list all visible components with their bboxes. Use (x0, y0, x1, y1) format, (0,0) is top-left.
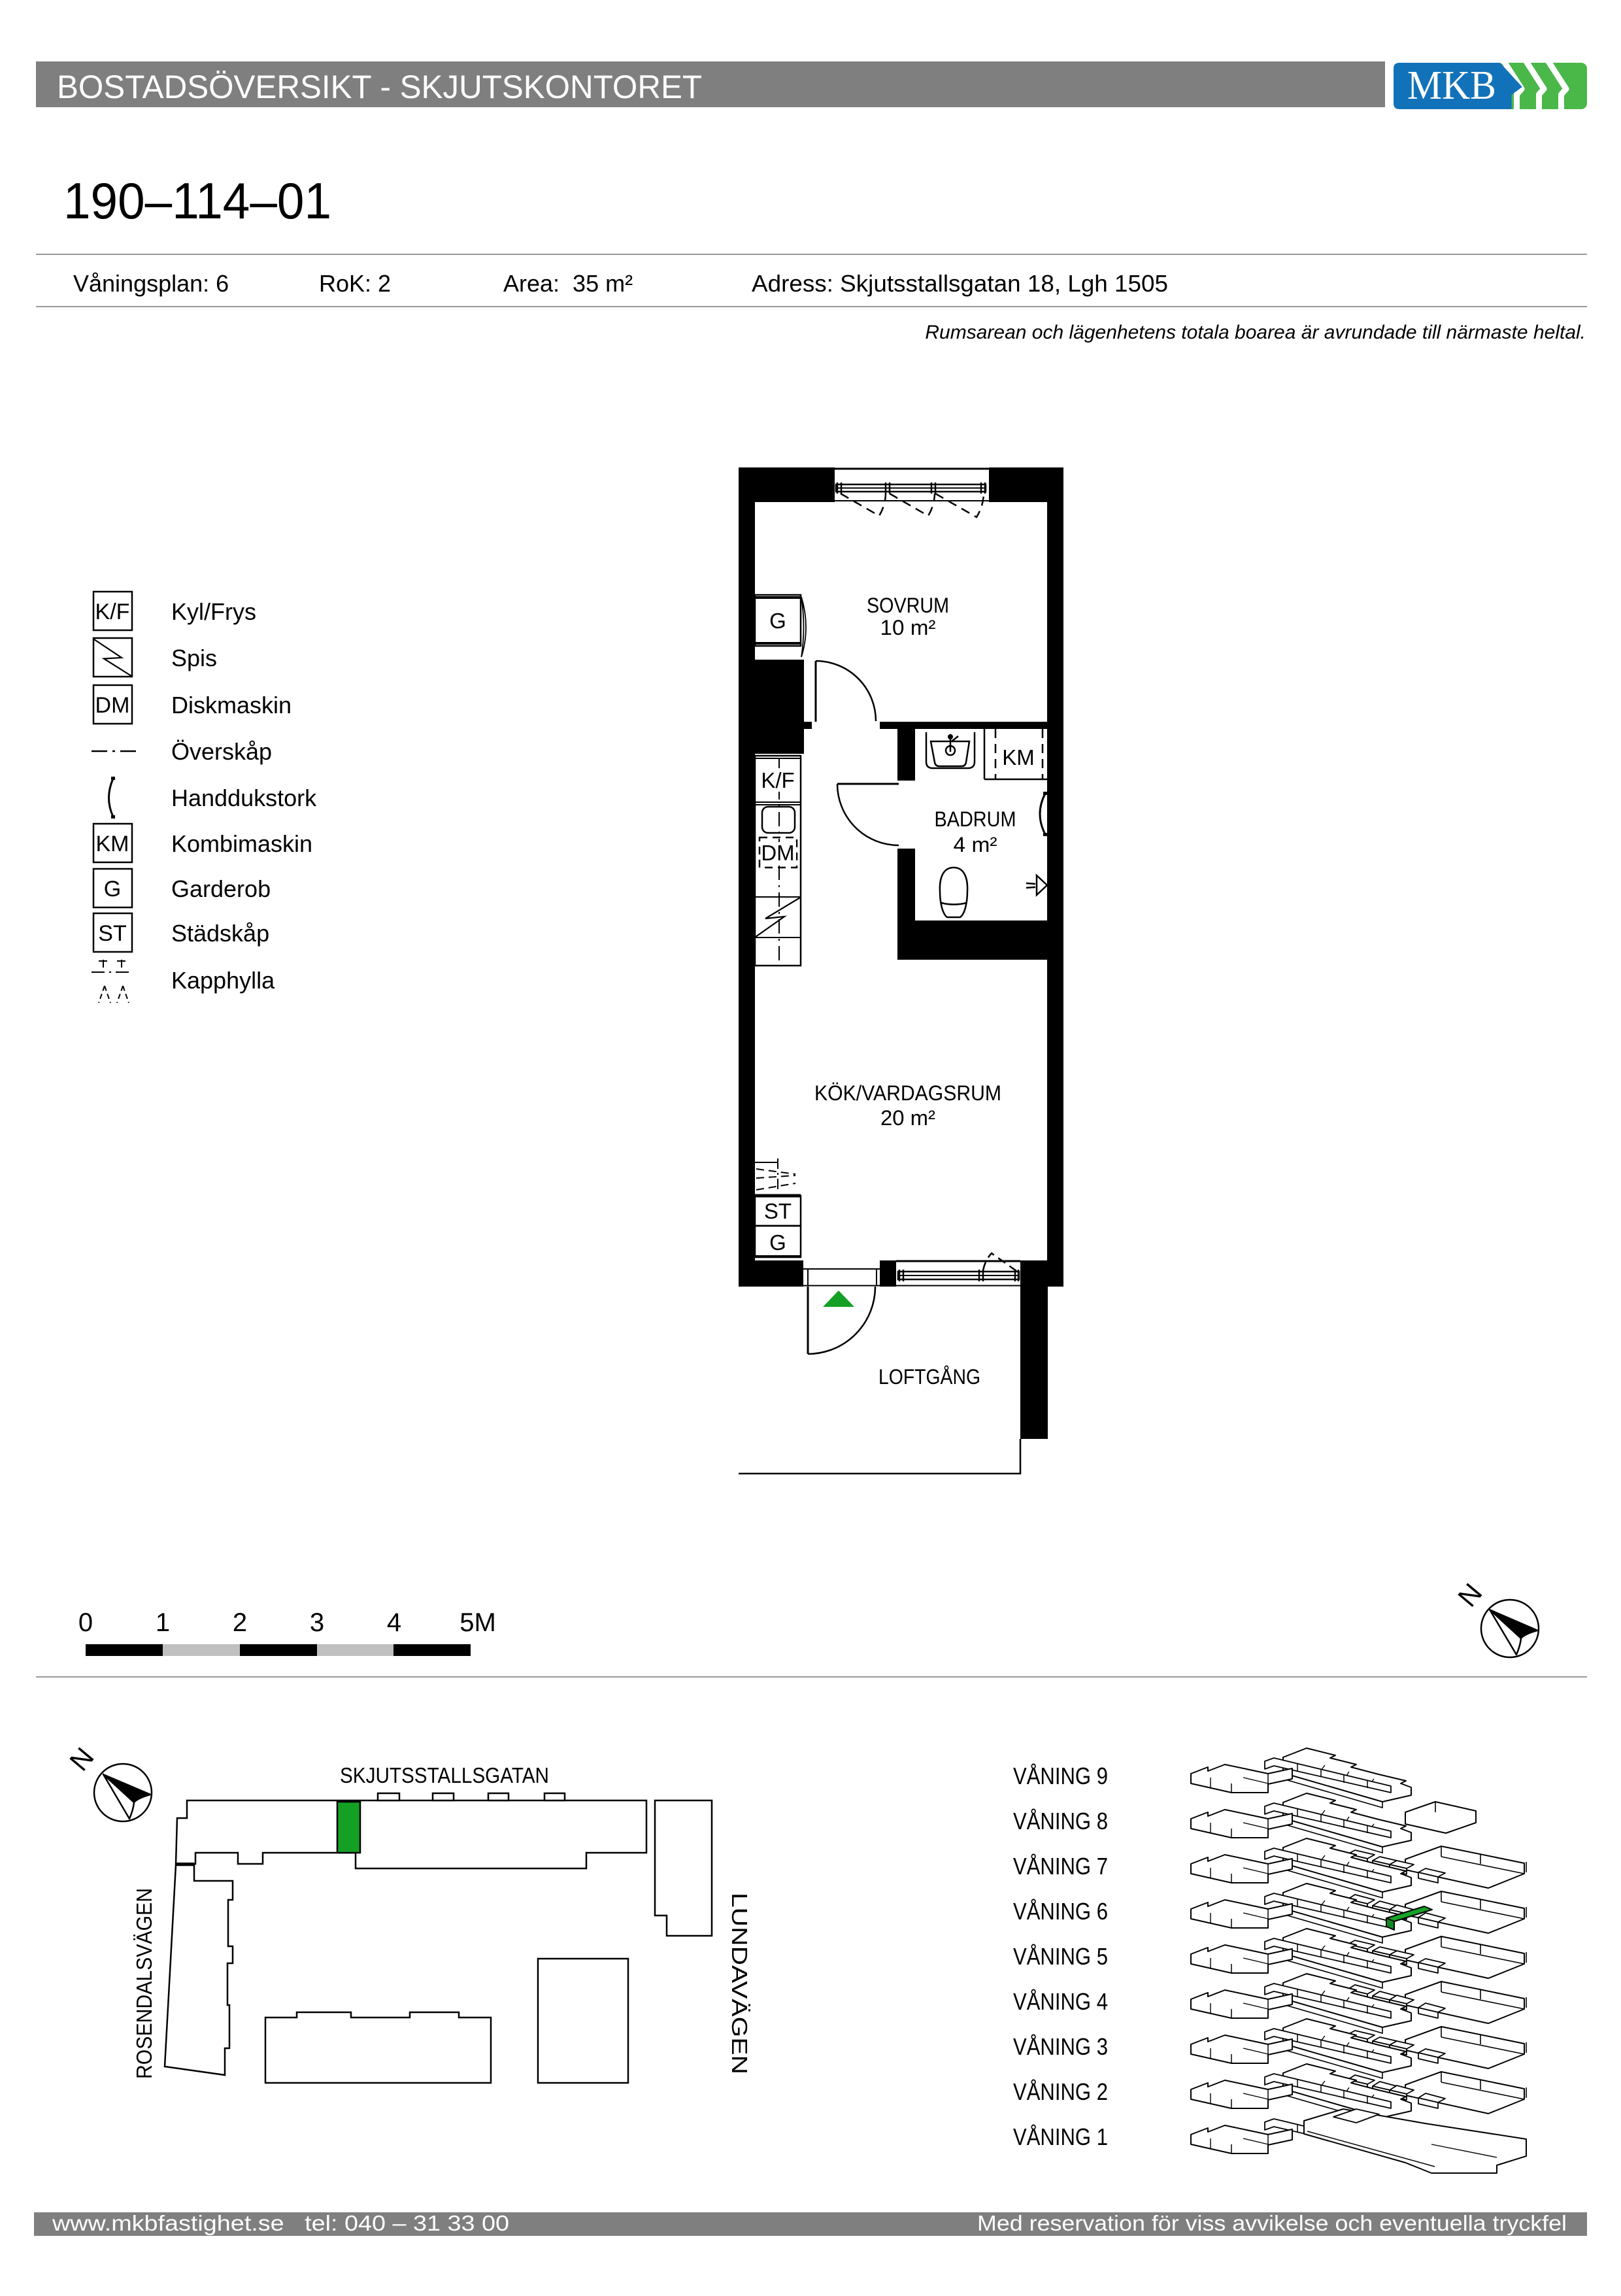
svg-text:www.mkbfastighet.se tel: 040: www.mkbfastighet.se tel: 040 – 31 33 00 (52, 2211, 509, 2235)
svg-text:SKJUTSSTALLSGATAN: SKJUTSSTALLSGATAN (340, 1763, 549, 1787)
svg-text:K/F: K/F (761, 768, 794, 792)
svg-text:1: 1 (156, 1608, 170, 1637)
svg-text:VÅNING 8: VÅNING 8 (1013, 1808, 1108, 1834)
svg-text:Med reservation för viss avvik: Med reservation för viss avvikelse och e… (977, 2211, 1567, 2235)
svg-text:LOFTGÅNG: LOFTGÅNG (878, 1365, 980, 1389)
svg-text:5M: 5M (460, 1608, 496, 1637)
svg-text:Städskåp: Städskåp (171, 920, 269, 947)
svg-text:VÅNING 3: VÅNING 3 (1013, 2033, 1108, 2060)
svg-text:KM: KM (96, 832, 129, 856)
svg-text:VÅNING 2: VÅNING 2 (1013, 2078, 1108, 2105)
svg-text:Handdukstork: Handdukstork (171, 785, 317, 811)
svg-text:Kapphylla: Kapphylla (171, 967, 275, 994)
svg-text:VÅNING 5: VÅNING 5 (1013, 1943, 1108, 1970)
svg-text:Kombimaskin: Kombimaskin (171, 830, 312, 857)
svg-text:Diskmaskin: Diskmaskin (171, 692, 292, 718)
svg-text:MKB: MKB (1407, 63, 1496, 108)
svg-text:SOVRUM: SOVRUM (867, 594, 949, 617)
svg-text:LUNDAVÄGEN: LUNDAVÄGEN (727, 1893, 752, 2074)
svg-text:3: 3 (310, 1608, 324, 1637)
svg-text:VÅNING 1: VÅNING 1 (1013, 2123, 1108, 2150)
svg-text:G: G (769, 1230, 786, 1255)
svg-text:RoK: 2: RoK: 2 (319, 270, 391, 297)
svg-text:G: G (104, 877, 121, 902)
svg-text:ST: ST (764, 1199, 792, 1223)
svg-text:Kyl/Frys: Kyl/Frys (171, 598, 256, 625)
svg-text:K/F: K/F (95, 599, 130, 624)
svg-text:ST: ST (98, 921, 126, 946)
svg-text:KM: KM (1002, 745, 1035, 769)
svg-text:Area: 35 m²: Area: 35 m² (503, 270, 633, 297)
svg-text:0: 0 (78, 1608, 93, 1637)
svg-text:4 m²: 4 m² (954, 833, 997, 856)
svg-text:190–114–01: 190–114–01 (63, 172, 331, 229)
svg-text:KÖK/VARDAGSRUM: KÖK/VARDAGSRUM (814, 1081, 1001, 1105)
svg-text:DM: DM (761, 841, 794, 865)
svg-text:10 m²: 10 m² (880, 616, 936, 639)
svg-text:N: N (63, 1742, 100, 1776)
svg-text:4: 4 (387, 1608, 401, 1637)
svg-text:Rumsarean och lägenhetens tota: Rumsarean och lägenhetens totala boarea … (925, 322, 1586, 343)
svg-text:Garderob: Garderob (171, 875, 271, 902)
svg-text:Överskåp: Överskåp (171, 738, 272, 765)
svg-text:N: N (1452, 1578, 1488, 1612)
svg-text:ROSENDALSVÄGEN: ROSENDALSVÄGEN (132, 1888, 156, 2079)
svg-text:VÅNING 6: VÅNING 6 (1013, 1898, 1108, 1925)
svg-text:Adress: Skjutsstallsgatan 18,: Adress: Skjutsstallsgatan 18, Lgh 1505 (752, 270, 1168, 297)
svg-text:VÅNING 4: VÅNING 4 (1013, 1988, 1108, 2015)
svg-text:Våningsplan: 6: Våningsplan: 6 (73, 270, 229, 297)
svg-text:VÅNING 7: VÅNING 7 (1013, 1853, 1108, 1880)
svg-text:2: 2 (233, 1608, 247, 1637)
svg-text:BOSTADSÖVERSIKT - SKJUTSKONTOR: BOSTADSÖVERSIKT - SKJUTSKONTORET (57, 69, 702, 105)
svg-text:DM: DM (95, 693, 130, 718)
svg-text:20 m²: 20 m² (880, 1106, 935, 1130)
svg-text:BADRUM: BADRUM (935, 807, 1016, 831)
svg-text:G: G (769, 609, 786, 633)
svg-text:VÅNING 9: VÅNING 9 (1013, 1763, 1108, 1789)
svg-text:Spis: Spis (171, 645, 217, 671)
